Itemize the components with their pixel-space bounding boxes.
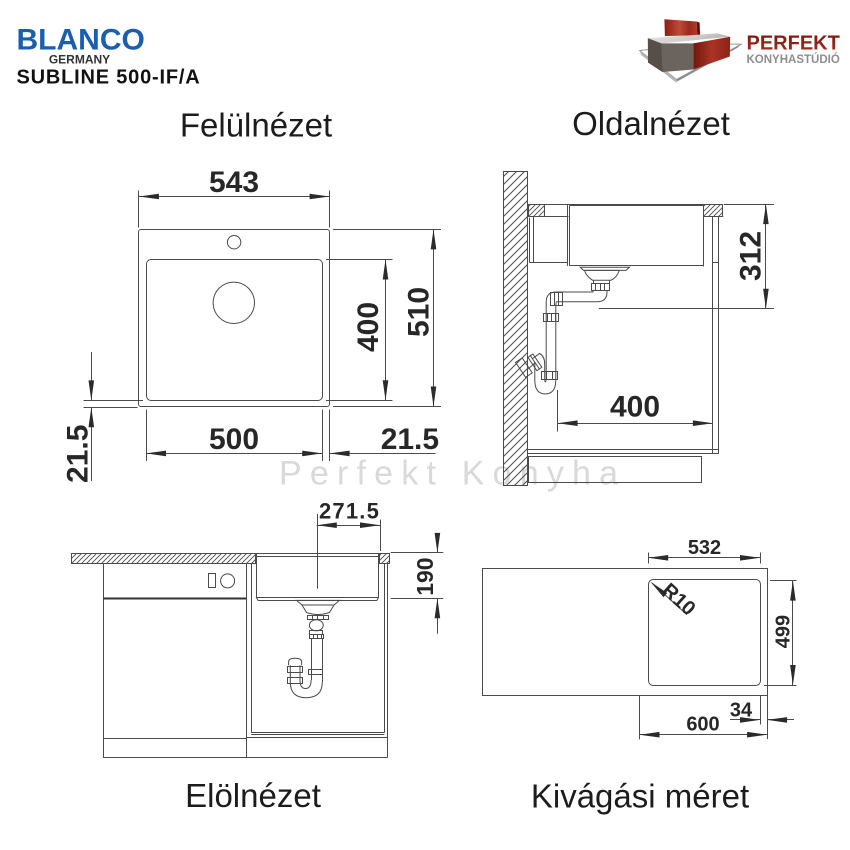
svg-text:499: 499	[773, 615, 795, 648]
svg-text:543: 543	[209, 166, 259, 199]
svg-text:SUBLINE 500-IF/A: SUBLINE 500-IF/A	[17, 67, 201, 89]
svg-text:PERFEKT: PERFEKT	[747, 32, 840, 54]
svg-text:510: 510	[402, 287, 435, 337]
svg-text:400: 400	[610, 391, 660, 424]
svg-text:500: 500	[209, 423, 259, 456]
svg-text:271.5: 271.5	[319, 499, 380, 524]
svg-text:312: 312	[734, 231, 767, 281]
svg-text:KONYHASTÚDIÓ: KONYHASTÚDIÓ	[747, 53, 840, 66]
svg-text:532: 532	[688, 537, 721, 559]
svg-text:Oldalnézet: Oldalnézet	[572, 105, 730, 142]
svg-text:400: 400	[352, 302, 385, 352]
svg-text:600: 600	[686, 714, 719, 736]
svg-text:21.5: 21.5	[61, 425, 94, 483]
svg-text:Kivágási méret: Kivágási méret	[531, 778, 749, 815]
svg-text:34: 34	[730, 700, 753, 722]
svg-text:Perfekt Konyha: Perfekt Konyha	[279, 455, 626, 493]
svg-text:21.5: 21.5	[381, 423, 439, 456]
svg-text:190: 190	[412, 557, 438, 595]
svg-text:Felülnézet: Felülnézet	[180, 107, 332, 144]
svg-text:GERMANY: GERMANY	[49, 53, 110, 67]
svg-text:Elölnézet: Elölnézet	[185, 777, 321, 814]
